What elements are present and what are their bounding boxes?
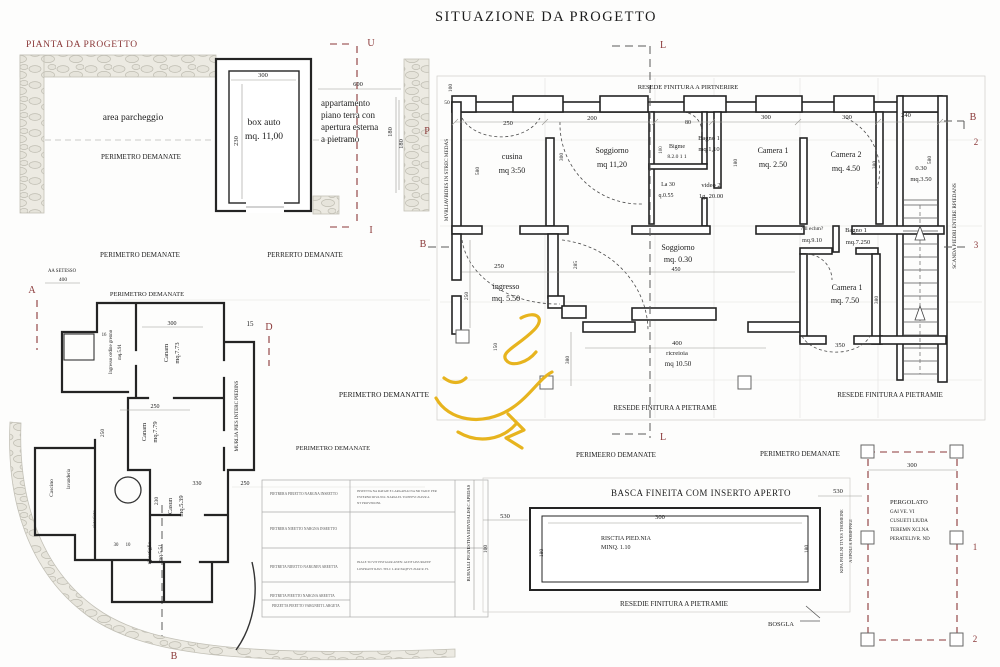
pergolato-title: PERGOLATO bbox=[890, 499, 928, 506]
perrerto-demanate: PERRERTO DEMANATE bbox=[267, 251, 342, 259]
perimetro-demanate-4: PERIMETRO DEMANATE bbox=[296, 445, 370, 452]
wall-note-left-vertical: MVRLIAVBIDES IN STREC MEDAS bbox=[444, 139, 450, 221]
note-mq910: mq.9.10 bbox=[802, 238, 822, 244]
dim-180-stone: 180 bbox=[398, 139, 405, 149]
wall-note-ll-vertical: MURLIA PIES INTERC PIEDINS bbox=[235, 380, 240, 451]
dim-300-box: 300 bbox=[258, 72, 268, 79]
pool-note-2: MINQ. 1.10 bbox=[601, 545, 631, 551]
room-canam-1-area: mq.7.73 bbox=[174, 342, 181, 363]
dim-380-camera1-lower: 380 bbox=[874, 296, 880, 305]
area-parcheggio-label: area parcheggio bbox=[103, 113, 164, 123]
pergolato-line-5: PERATELIVR. ND bbox=[890, 537, 930, 542]
room-cusina-area: mq 3:50 bbox=[499, 166, 525, 175]
section-marker-b-right: B bbox=[970, 112, 977, 123]
room-canam-2-area: mq.7.79 bbox=[152, 421, 159, 442]
stone-wall-left bbox=[20, 55, 44, 213]
page-title: SITUAZIONE DA PROGETTO bbox=[435, 9, 657, 25]
apartment-line-3: apertura esterna bbox=[321, 122, 378, 132]
resede-finitura-bottom: RESEDE FINITURA A PIETRAME bbox=[613, 404, 716, 412]
resedie-finitura-pool: RESEDIE FINITURA A PIETRAMIE bbox=[620, 600, 728, 608]
dim-250-top: 250 bbox=[503, 120, 513, 127]
dim-30-ll: 30 bbox=[114, 543, 119, 548]
dim-15: 15 bbox=[247, 320, 255, 328]
room-bagno1-lower-area: mq.7.250 bbox=[846, 239, 871, 246]
dim-250-ll-2: 250 bbox=[241, 481, 250, 487]
dim-16-ll: 16 bbox=[102, 333, 107, 338]
room-canam-1: Canam bbox=[163, 344, 170, 362]
dim-580-cusina: 580 bbox=[475, 167, 481, 176]
dim-180-apartment: 180 bbox=[387, 127, 394, 137]
section-marker-b-bottom: B bbox=[171, 651, 178, 662]
note-bosgla: BOSGLA bbox=[768, 621, 794, 628]
room-ripostiglio-area: mq.5.51 bbox=[158, 544, 164, 562]
note-q055: q.0.55 bbox=[659, 193, 674, 199]
note-echm: ?ill echm? bbox=[801, 226, 824, 232]
table-note-2b: LOSPRANT RAVI. TELC L.R.R PAQPVS ZIAR R.… bbox=[357, 567, 429, 571]
dim-200-top: 200 bbox=[587, 115, 597, 122]
room-ingresso-area: mq. 5.50 bbox=[492, 294, 520, 303]
section-marker-b-left: B bbox=[420, 239, 427, 250]
section-marker-p-left: P bbox=[424, 126, 430, 137]
apartment-line-1: appartamento bbox=[321, 98, 370, 108]
pool-note-1: RISCTIA PIED.NIA bbox=[601, 536, 652, 542]
perimetro-demanatte: PERIMETRO DEMANATTE bbox=[339, 390, 430, 399]
resede-finitura-right: RESEDE FINITURA A PIETRAMIE bbox=[837, 391, 943, 399]
pool-title: BASCA FINEITA COM INSERTO APERTO bbox=[611, 488, 791, 498]
dim-80-top: 80 bbox=[685, 120, 691, 126]
dim-300-ll: 300 bbox=[168, 321, 177, 327]
dim-380-lower: 380 bbox=[565, 356, 571, 365]
architectural-plan-scan: { "title": "SITUAZIONE DA PROGETTO", "pl… bbox=[0, 0, 1000, 667]
dim-530-pool-left: 530 bbox=[500, 513, 510, 520]
stair-note-vertical: SCANDA PIEDRI ENTIRE RPIEDANS bbox=[952, 183, 958, 269]
room-bigme-area: 8.2.0 1 1 bbox=[667, 154, 687, 160]
dim-330-ll: 330 bbox=[193, 481, 202, 487]
plan-subtitle: PIANTA DA PROGETTO bbox=[26, 40, 138, 50]
note-la30: La 30 bbox=[661, 182, 675, 188]
note-ricreioia-area: mq 10.50 bbox=[665, 360, 692, 368]
room-camera1-lower-area: mq. 7.50 bbox=[831, 296, 859, 305]
room-camera2: Camera 2 bbox=[831, 150, 862, 159]
room-video2-area: 1g. 20.00 bbox=[699, 193, 723, 200]
stair-direction-arrow-2 bbox=[915, 306, 925, 320]
dim-400-left: 400 bbox=[59, 277, 68, 283]
room-camera2-area: mq. 4.50 bbox=[832, 164, 860, 173]
dim-10-ll: 10 bbox=[126, 543, 131, 548]
stone-curved-wall bbox=[10, 422, 455, 660]
pergolato-area bbox=[861, 445, 963, 646]
table-row-3: PIETRETA NIEETTO NARGNEN AREETTA bbox=[270, 565, 338, 569]
stone-stub bbox=[313, 196, 339, 214]
table-note-1c: NT PROVISIONL bbox=[357, 501, 381, 505]
room-camera1-lower: Camera 1 bbox=[832, 283, 863, 292]
dim-230-box: 230 bbox=[233, 136, 240, 146]
dim-300-pergolato: 300 bbox=[907, 462, 917, 469]
room-030: 0.30 bbox=[915, 165, 926, 172]
section-marker-3-right: 3 bbox=[974, 240, 979, 250]
pool-outer bbox=[530, 508, 820, 590]
room-bigme: Bigme bbox=[669, 144, 685, 150]
room-camera1-top: Camera 1 bbox=[758, 146, 789, 155]
dim-300-top-2: 300 bbox=[842, 114, 852, 121]
pergolato-line-4: TEREMN XCI.NA bbox=[890, 528, 929, 533]
lower-left-building bbox=[10, 283, 455, 660]
room-soggiorno-1: Soggiorno bbox=[595, 146, 628, 155]
note-ricreioia: ricreioia bbox=[666, 350, 688, 357]
dim-400-ricreioia: 400 bbox=[672, 340, 682, 347]
pergolato-line-2: GAI VE. VI bbox=[890, 510, 915, 515]
labels-layer: area parcheggioPERIMETRO DEMANATEbox aut… bbox=[28, 38, 978, 662]
section-marker-l-top: L bbox=[660, 40, 666, 51]
section-marker-l-bottom: L bbox=[660, 432, 666, 443]
table-row-5: PIEZETTA PIEETTO VARGNEIT LARGETA bbox=[272, 604, 340, 608]
dim-250-ingresso-left: 250 bbox=[464, 292, 470, 301]
table-note-1a: INSEETTA NA RATAIE E LARGAPIAI NA NR VAI… bbox=[357, 489, 438, 493]
table-note-2a: INALE TO VIT PISTGGIR ANEN: ALTIF IAVURG… bbox=[357, 560, 431, 564]
section-marker-2-pergolato: 2 bbox=[973, 634, 978, 644]
section-marker-i: I bbox=[369, 225, 372, 236]
dim-450: 450 bbox=[672, 267, 681, 273]
room-soggiorno-2-area: mq. 0.30 bbox=[664, 255, 692, 264]
round-fixture bbox=[115, 477, 141, 503]
dim-300-pool: 300 bbox=[655, 514, 665, 521]
table-note-1b: ESTERNO RIVA NLL NARGLEL TLIEEPVI ZIAVR … bbox=[357, 495, 430, 499]
dim-100-topleft: 100 bbox=[448, 84, 454, 93]
apartment-line-4: a pietramo bbox=[321, 134, 360, 144]
table-row-4: PIETRETA PIEETTO NARGNA AREETTA bbox=[270, 594, 335, 598]
room-camera1-top-area: mq. 2.50 bbox=[759, 160, 787, 169]
room-ingresso-ordine: Ingresso ordine grenno bbox=[109, 329, 114, 374]
dim-250-ll-1: 250 bbox=[151, 404, 160, 410]
room-casun: Casun bbox=[167, 497, 174, 514]
dim-100-bagno: 100 bbox=[659, 146, 664, 154]
stone-wall-top bbox=[20, 55, 216, 77]
dim-180-pool-right: 180 bbox=[804, 545, 810, 554]
table-row-1: PIETRERA PIEIETTO NARGNA INSEETTO bbox=[270, 492, 338, 496]
perimetro-demanate-3: PERIMETRO DEMANATE bbox=[110, 291, 184, 298]
pool-note-left-vertical: BURALLI PIGNESTHA EDIVDALISEC APEDAS bbox=[466, 484, 471, 581]
inner-curve bbox=[236, 562, 255, 650]
pergolato-line-3: CUSUETI LIUDA bbox=[890, 519, 928, 524]
perimetro-demanate-5: PERIMETRO DEMANATE bbox=[760, 450, 840, 458]
perimetro-demanate-1: PERIMETRO DEMANATE bbox=[101, 153, 181, 161]
resede-finitura-top: RESEDE FINITURA A PIRTNERIRE bbox=[638, 84, 739, 91]
section-marker-2-right: 2 bbox=[974, 137, 979, 147]
perimeero-demanate: PERIMEERO DEMANATE bbox=[576, 451, 656, 459]
room-ingresso: ingresso bbox=[493, 282, 520, 291]
table-row-2: PIETRERA NIEETTO NARGNA INSEETTO bbox=[270, 527, 337, 531]
pool-note-right-vertical-1: KIPA PHELNI TIVES THOMEINE bbox=[839, 509, 844, 573]
dim-380-camera2: 380 bbox=[872, 161, 878, 170]
fixture-rect bbox=[64, 334, 94, 360]
dim-285: 285 bbox=[573, 261, 579, 270]
dim-300-top-1: 300 bbox=[761, 114, 771, 121]
dim-350-camera1-lower: 350 bbox=[835, 342, 845, 349]
dim-580-stair: 580 bbox=[927, 156, 933, 165]
room-canam-2: Canam bbox=[141, 423, 148, 441]
room-ingresso-ordine-area: mq.5.91 bbox=[118, 344, 123, 360]
room-soggiorno-1-area: mq 11,20 bbox=[597, 160, 627, 169]
dim-530-pool-right: 530 bbox=[833, 488, 843, 495]
section-marker-a: A bbox=[28, 285, 36, 296]
room-video2: video 2 bbox=[701, 182, 720, 189]
room-030-area: mq.3.50 bbox=[910, 176, 931, 183]
room-bagno1-lower: Bagno 1 bbox=[845, 227, 867, 234]
dim-240-top: 240 bbox=[901, 112, 911, 119]
room-bagno1-top: Bagno 1 bbox=[698, 135, 720, 142]
dim-180-camera1: 180 bbox=[733, 159, 739, 168]
box-auto-area: mq. 11,00 bbox=[245, 132, 283, 142]
room-ristorioto: ristorioto bbox=[93, 510, 98, 528]
dim-230-ll: 230 bbox=[154, 497, 160, 506]
room-cusina: cusina bbox=[502, 152, 523, 161]
section-marker-d: D bbox=[265, 322, 272, 333]
room-cascino: Cascino bbox=[49, 479, 55, 497]
apartment-line-2: piano terra con bbox=[321, 110, 375, 120]
aa-setesso: AA SETESSO bbox=[48, 269, 77, 274]
room-casun-area: mq.5.39 bbox=[178, 495, 185, 516]
dim-180-pool-left: 180 bbox=[539, 549, 545, 558]
dim-300-soggiorno: 300 bbox=[559, 153, 565, 162]
room-soggiorno-2: Soggiorno bbox=[661, 243, 694, 252]
section-marker-u: U bbox=[367, 38, 375, 49]
dim-600: 600 bbox=[353, 81, 363, 88]
room-lavanderia: lavanderia bbox=[67, 468, 72, 489]
dim-50-topleft: 50 bbox=[444, 100, 450, 106]
dim-150-ingresso: 150 bbox=[493, 343, 499, 352]
section-marker-1-pergolato: 1 bbox=[973, 542, 978, 552]
garage-door-opening bbox=[246, 202, 284, 213]
plan-drawing: SITUAZIONE DA PROGETTO PIANTA DA PROGETT… bbox=[0, 0, 1000, 667]
box-auto-label: box auto bbox=[248, 118, 281, 128]
dim-100-pool: 100 bbox=[483, 545, 489, 554]
perimetro-demanate-2: PERIMETRO DEMANATE bbox=[100, 251, 180, 259]
bosgla-leader bbox=[800, 606, 820, 621]
pool-note-right-vertical-2: A EPOLI A POMPPNGI bbox=[848, 519, 853, 563]
dim-250-ingresso-top: 250 bbox=[494, 263, 504, 270]
room-bagno1-top-area: mq.1,10 bbox=[698, 146, 719, 153]
room-ripostiglio: ripostiglio bbox=[147, 541, 153, 564]
parking-area-drawing bbox=[20, 55, 429, 214]
dim-250-ll-left: 250 bbox=[100, 429, 106, 438]
